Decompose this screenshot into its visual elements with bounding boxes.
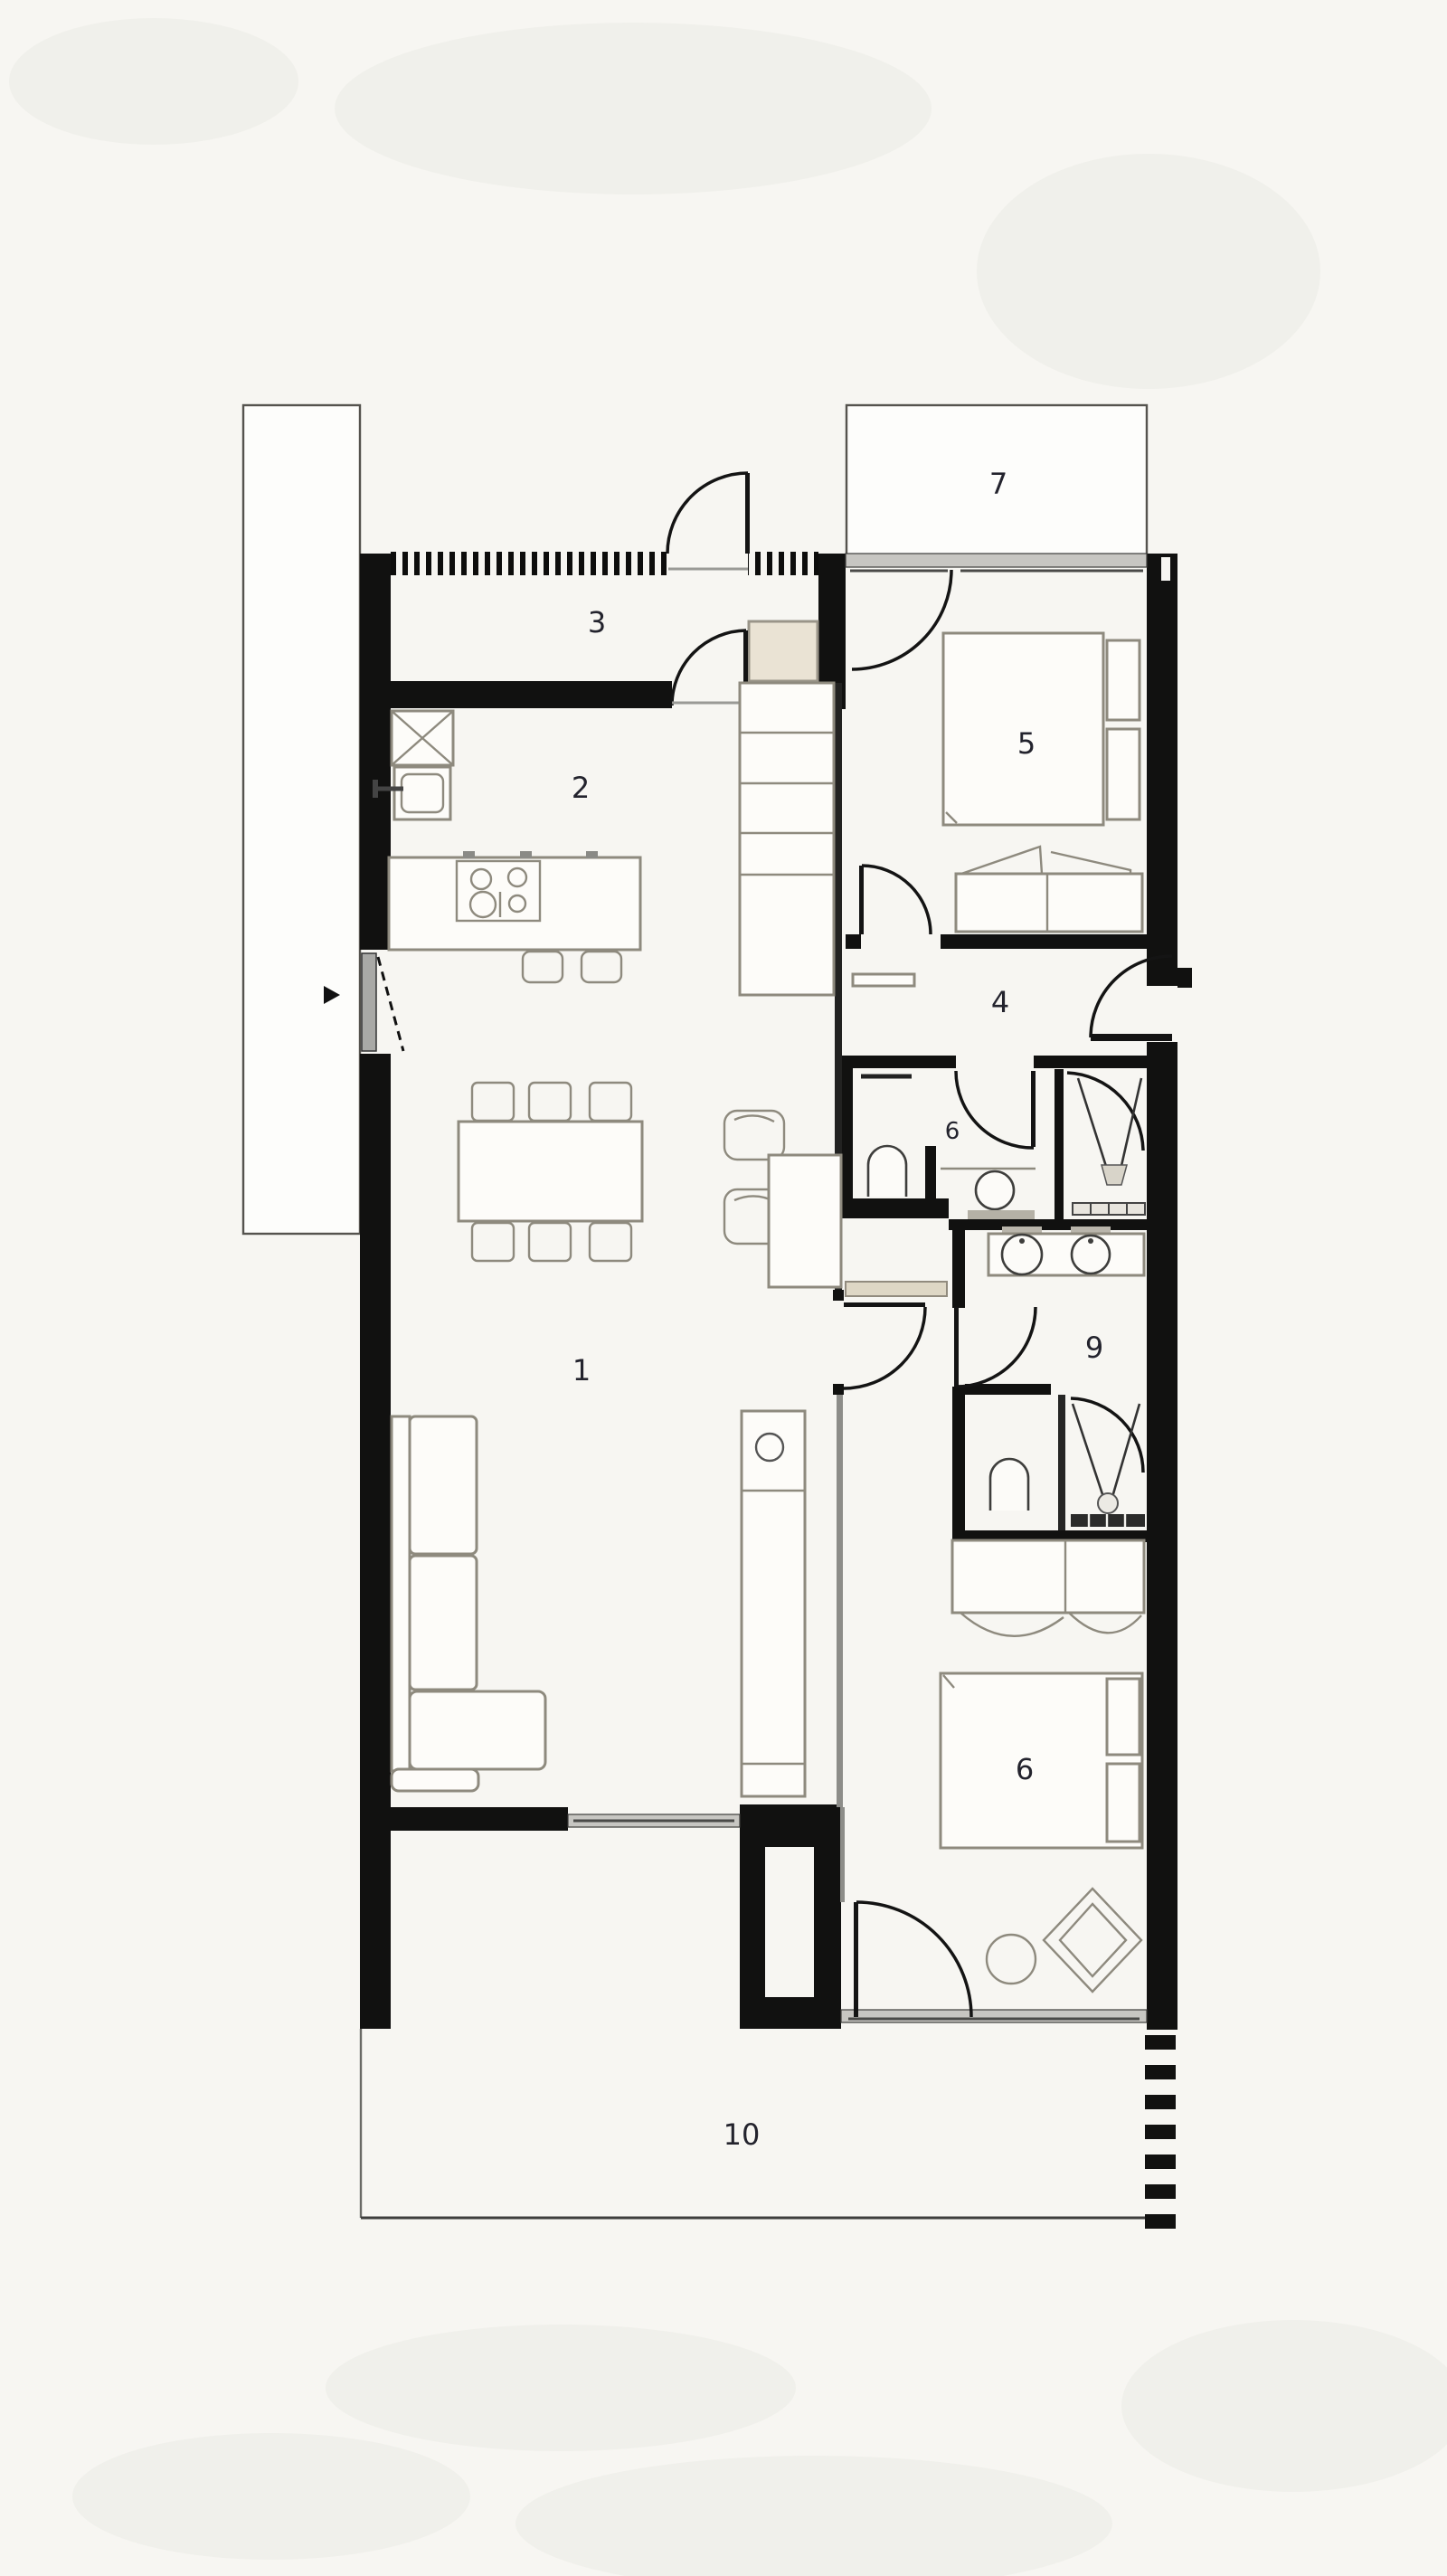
hall-ledge [853,974,914,986]
corridor-shelf [846,1282,947,1296]
room-label-bathroom: 6 [945,1118,960,1145]
console-desk [769,1155,841,1287]
dining-table [459,1122,642,1221]
bar-stools [523,952,621,982]
lounge-chair [1044,1889,1141,1992]
side-table [987,1935,1036,1984]
floor-plan-drawing: 1 2 3 4 5 6 7 9 6 10 [0,0,1447,2576]
bedroom-upper-furniture [943,633,1142,932]
bathroom-door [956,1071,1036,1148]
terrace-stair-slot [765,1847,814,1997]
shower-lower-door [1071,1398,1143,1473]
dressing-fixtures [846,974,1144,1296]
dresser-lower [952,1540,1144,1636]
tall-cabinet-column [740,683,834,995]
bedroom-lower-terrace-door [854,1902,971,2017]
room-label-dressing: 9 [1085,1331,1103,1365]
driveway-outline [243,405,360,1234]
room-label-hallway: 4 [991,985,1009,1019]
toilet-upper [868,1146,906,1197]
basin-upper [976,1171,1014,1209]
room-label-terrace-upper: 7 [989,467,1007,501]
bedroom-upper-door [859,866,931,934]
living-to-corridor-door [844,1302,925,1388]
entry-closet [749,621,818,681]
hatched-top-wall [391,548,818,575]
bedroom-lower-furniture [941,1540,1144,1992]
room-label-bedroom-upper: 5 [1017,726,1036,761]
sofa [392,1416,545,1791]
entry-hall-door [672,630,748,706]
room-label-living: 1 [572,1353,591,1387]
room-label-kitchen: 2 [572,771,590,805]
bedroom-upper-terrace-door [852,570,951,669]
bathroom-fixtures [861,1076,1145,1219]
shower-lower [1071,1404,1145,1527]
lower-terrace-boundary [361,2029,1176,2229]
floor-plan-page: 1 2 3 4 5 6 7 9 6 10 [0,0,1447,2576]
tv-sideboard [742,1411,805,1796]
room-label-bedroom-lower: 6 [1016,1752,1034,1786]
entry-top-door [667,473,750,554]
toilet-lower [990,1459,1028,1511]
kitchen-furniture [373,683,834,995]
shower-upper-door [1067,1073,1143,1151]
kitchen-island [389,851,640,950]
paper-texture [9,18,1447,2576]
living-dining-furniture [392,1083,841,1796]
dashed-edge-strip [1145,2035,1176,2229]
room-label-entry: 3 [588,605,606,639]
dressing-door [954,1307,1036,1387]
right-wall-notch [1161,557,1170,581]
dresser-upper [956,847,1142,932]
shower-upper [1073,1078,1145,1215]
room-label-terrace-lower: 10 [723,2117,761,2152]
